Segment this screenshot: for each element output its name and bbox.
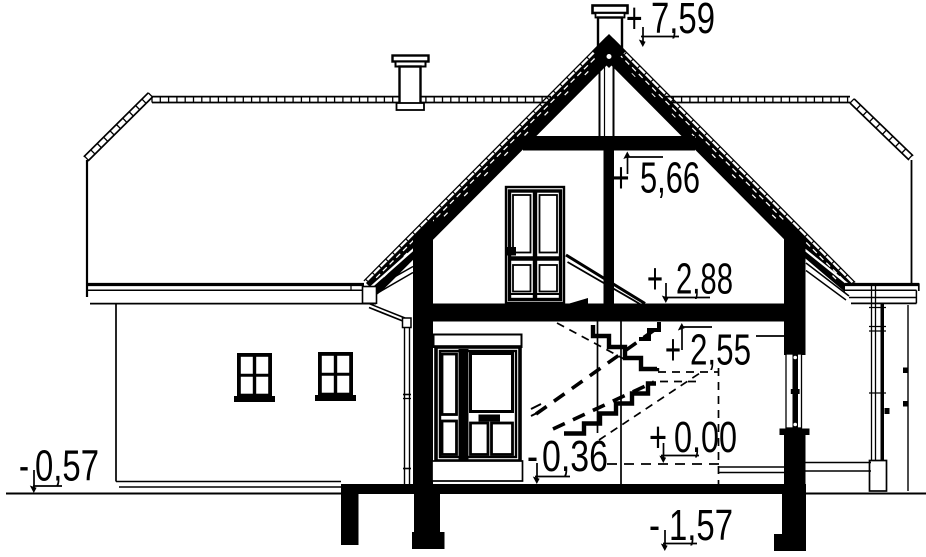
svg-text:0,57: 0,57 xyxy=(35,442,99,491)
svg-text:0,36: 0,36 xyxy=(542,432,608,481)
svg-text:2,88: 2,88 xyxy=(676,255,733,304)
svg-text:2,55: 2,55 xyxy=(690,326,751,375)
svg-text:-: - xyxy=(649,501,660,550)
svg-text:-: - xyxy=(19,442,29,491)
svg-text:+: + xyxy=(665,326,681,375)
svg-text:5,66: 5,66 xyxy=(640,154,700,203)
svg-text:+: + xyxy=(626,0,643,43)
svg-text:+: + xyxy=(647,255,663,304)
